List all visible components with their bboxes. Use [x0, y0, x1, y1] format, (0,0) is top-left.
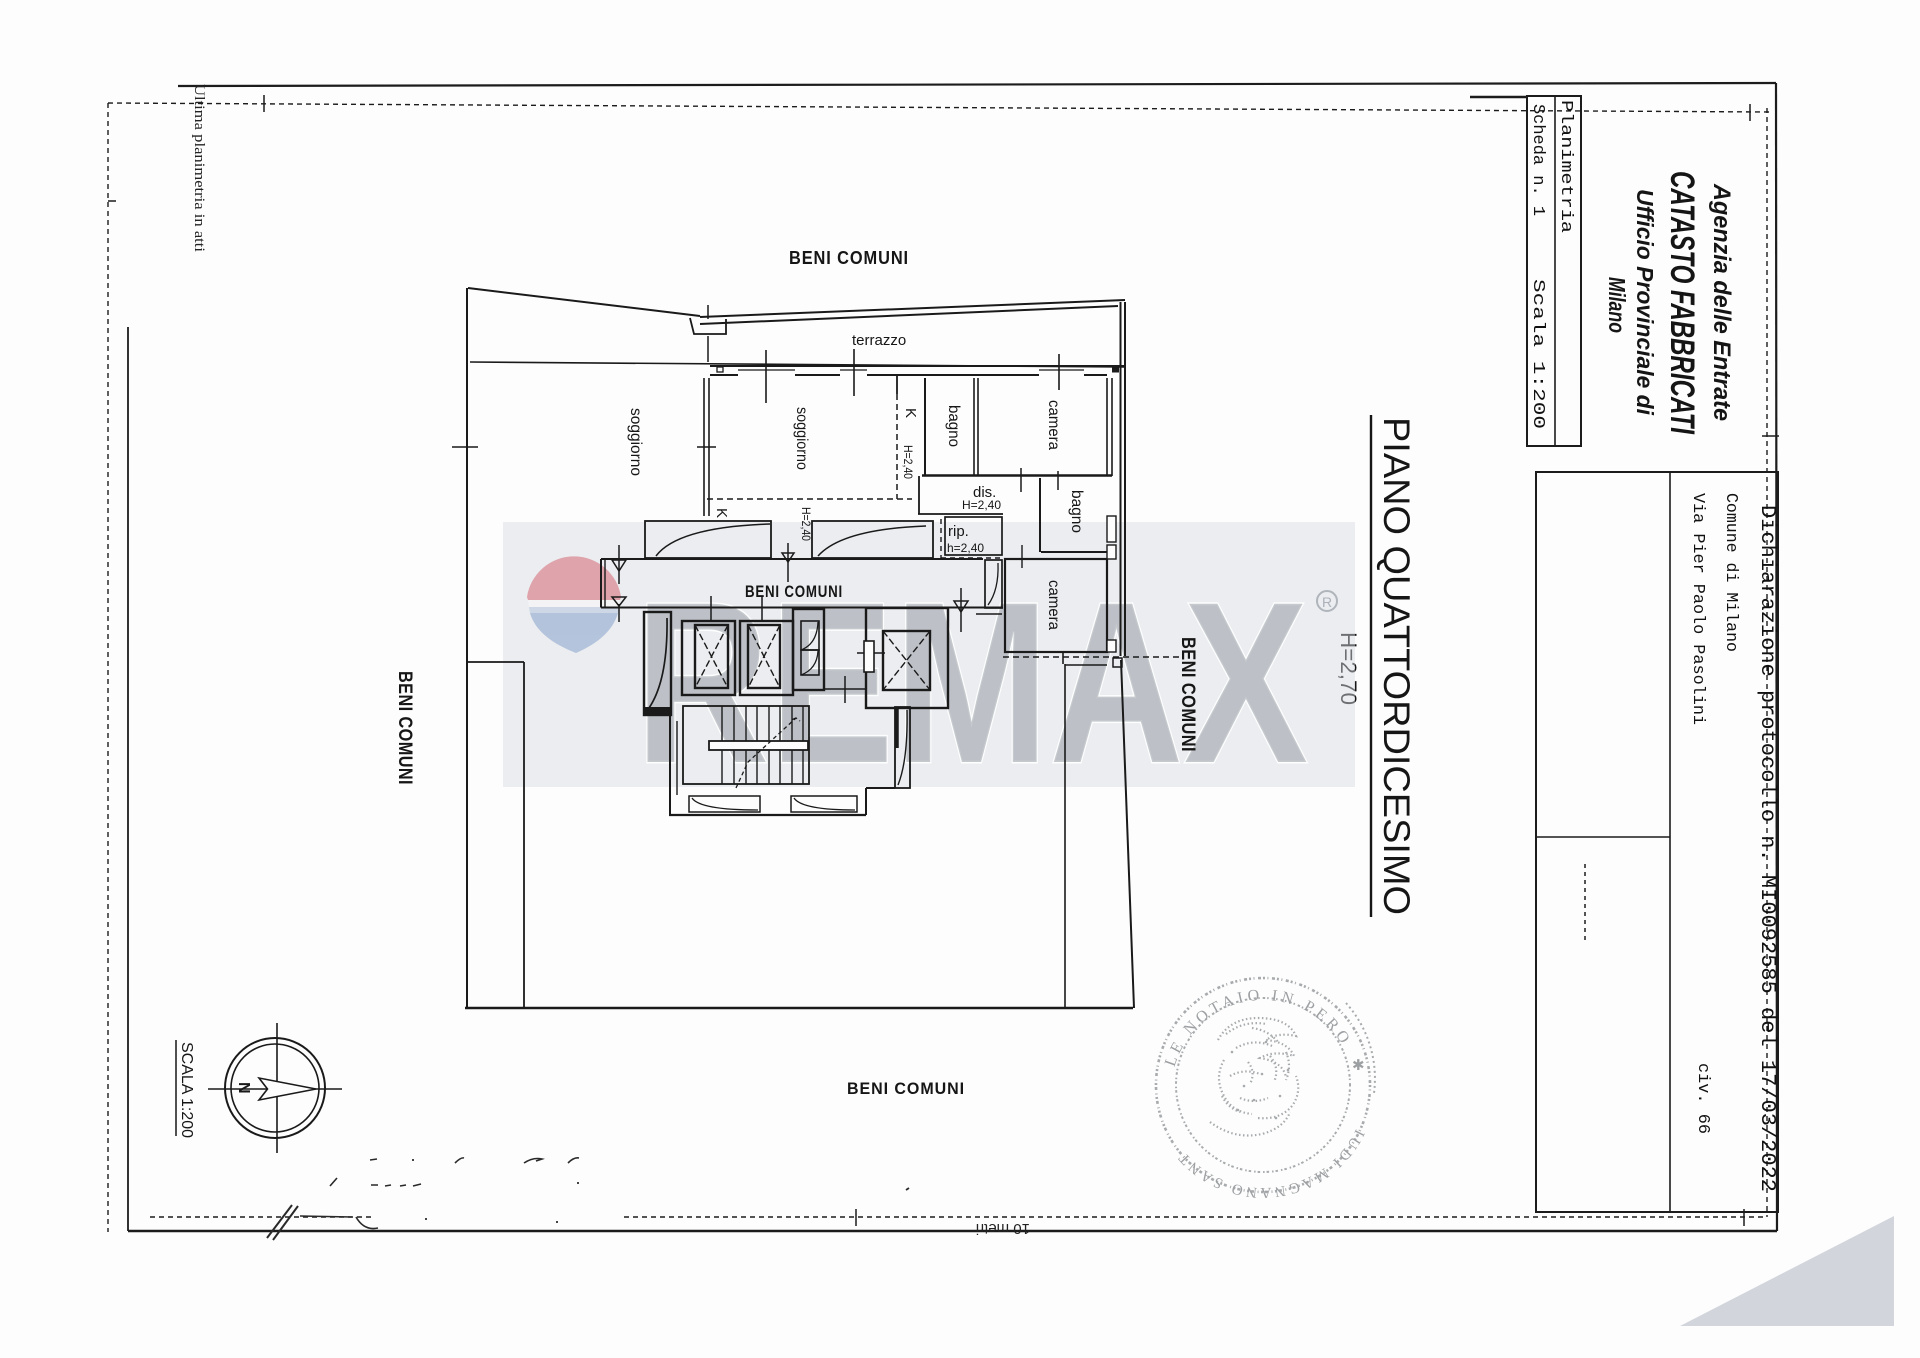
- svg-text:soggiorno: soggiorno: [627, 408, 644, 476]
- svg-text:Agenzia delle Entrate: Agenzia delle Entrate: [1708, 183, 1735, 421]
- svg-text:Ultima planimetria in atti: Ultima planimetria in atti: [191, 84, 207, 252]
- svg-text:rip.: rip.: [948, 523, 969, 540]
- svg-text:BENI COMUNI: BENI COMUNI: [745, 582, 843, 601]
- svg-text:PIANO QUATTORDICESIMO: PIANO QUATTORDICESIMO: [1376, 417, 1417, 915]
- svg-text:h=2,40: h=2,40: [947, 541, 984, 555]
- svg-text:Scheda n. 1: Scheda n. 1: [1528, 104, 1547, 216]
- svg-text:H=2,40: H=2,40: [901, 445, 915, 479]
- svg-text:soggiorno: soggiorno: [793, 407, 810, 470]
- svg-text:CATASTO FABBRICATI: CATASTO FABBRICATI: [1663, 171, 1701, 435]
- svg-text:terrazzo: terrazzo: [852, 332, 906, 349]
- svg-text:✱: ✱: [1352, 1057, 1365, 1074]
- svg-text:H=2,40: H=2,40: [799, 507, 813, 541]
- svg-text:SCALA 1:200: SCALA 1:200: [178, 1042, 195, 1138]
- svg-text:camera: camera: [1045, 580, 1062, 630]
- svg-text:Scala 1:200: Scala 1:200: [1528, 279, 1547, 429]
- svg-text:Milano: Milano: [1604, 277, 1630, 333]
- svg-text:bagno: bagno: [945, 405, 962, 447]
- svg-text:N: N: [235, 1082, 252, 1094]
- svg-text:BENI COMUNI: BENI COMUNI: [789, 248, 909, 268]
- svg-text:BENI COMUNI: BENI COMUNI: [847, 1079, 965, 1098]
- svg-text:Via Pier Paolo Pasolini: Via Pier Paolo Pasolini: [1688, 493, 1707, 725]
- svg-text:BENI COMUNI: BENI COMUNI: [394, 671, 415, 785]
- svg-text:camera: camera: [1045, 400, 1062, 450]
- svg-text:BENI COMUNI: BENI COMUNI: [1177, 637, 1198, 752]
- svg-text:Ufficio Provinciale di: Ufficio Provinciale di: [1632, 189, 1658, 416]
- svg-text:Planimetria: Planimetria: [1556, 100, 1575, 233]
- svg-text:IUDI MAGNANO SANT: IUDI MAGNANO SANT: [1174, 1127, 1367, 1200]
- svg-text:K: K: [713, 508, 730, 518]
- svg-text:civ. 66: civ. 66: [1693, 1063, 1712, 1134]
- svg-text:H=2,40: H=2,40: [962, 498, 1001, 512]
- svg-text:bagno: bagno: [1068, 490, 1085, 533]
- svg-text:K: K: [902, 408, 919, 418]
- svg-text:R: R: [1322, 594, 1332, 610]
- svg-text:10 metri: 10 metri: [976, 1220, 1030, 1237]
- svg-text:Dichiarazione protocollo n. MI: Dichiarazione protocollo n. MI0092585 de…: [1755, 505, 1778, 1192]
- svg-text:Comune di Milano: Comune di Milano: [1721, 493, 1740, 652]
